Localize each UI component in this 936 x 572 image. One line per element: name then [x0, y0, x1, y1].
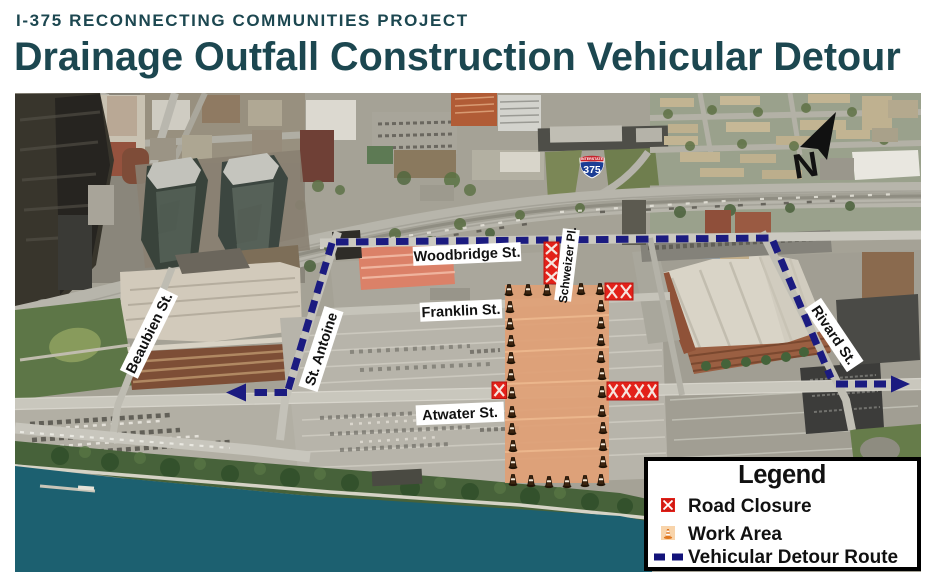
svg-text:Work Area: Work Area — [688, 524, 782, 545]
svg-text:Vehicular Detour Route: Vehicular Detour Route — [688, 547, 898, 568]
svg-text:INTERSTATE: INTERSTATE — [581, 157, 604, 161]
svg-text:375: 375 — [583, 164, 601, 176]
svg-text:Atwater St.: Atwater St. — [422, 405, 498, 424]
svg-text:Legend: Legend — [738, 461, 826, 489]
svg-text:Road Closure: Road Closure — [688, 496, 812, 517]
